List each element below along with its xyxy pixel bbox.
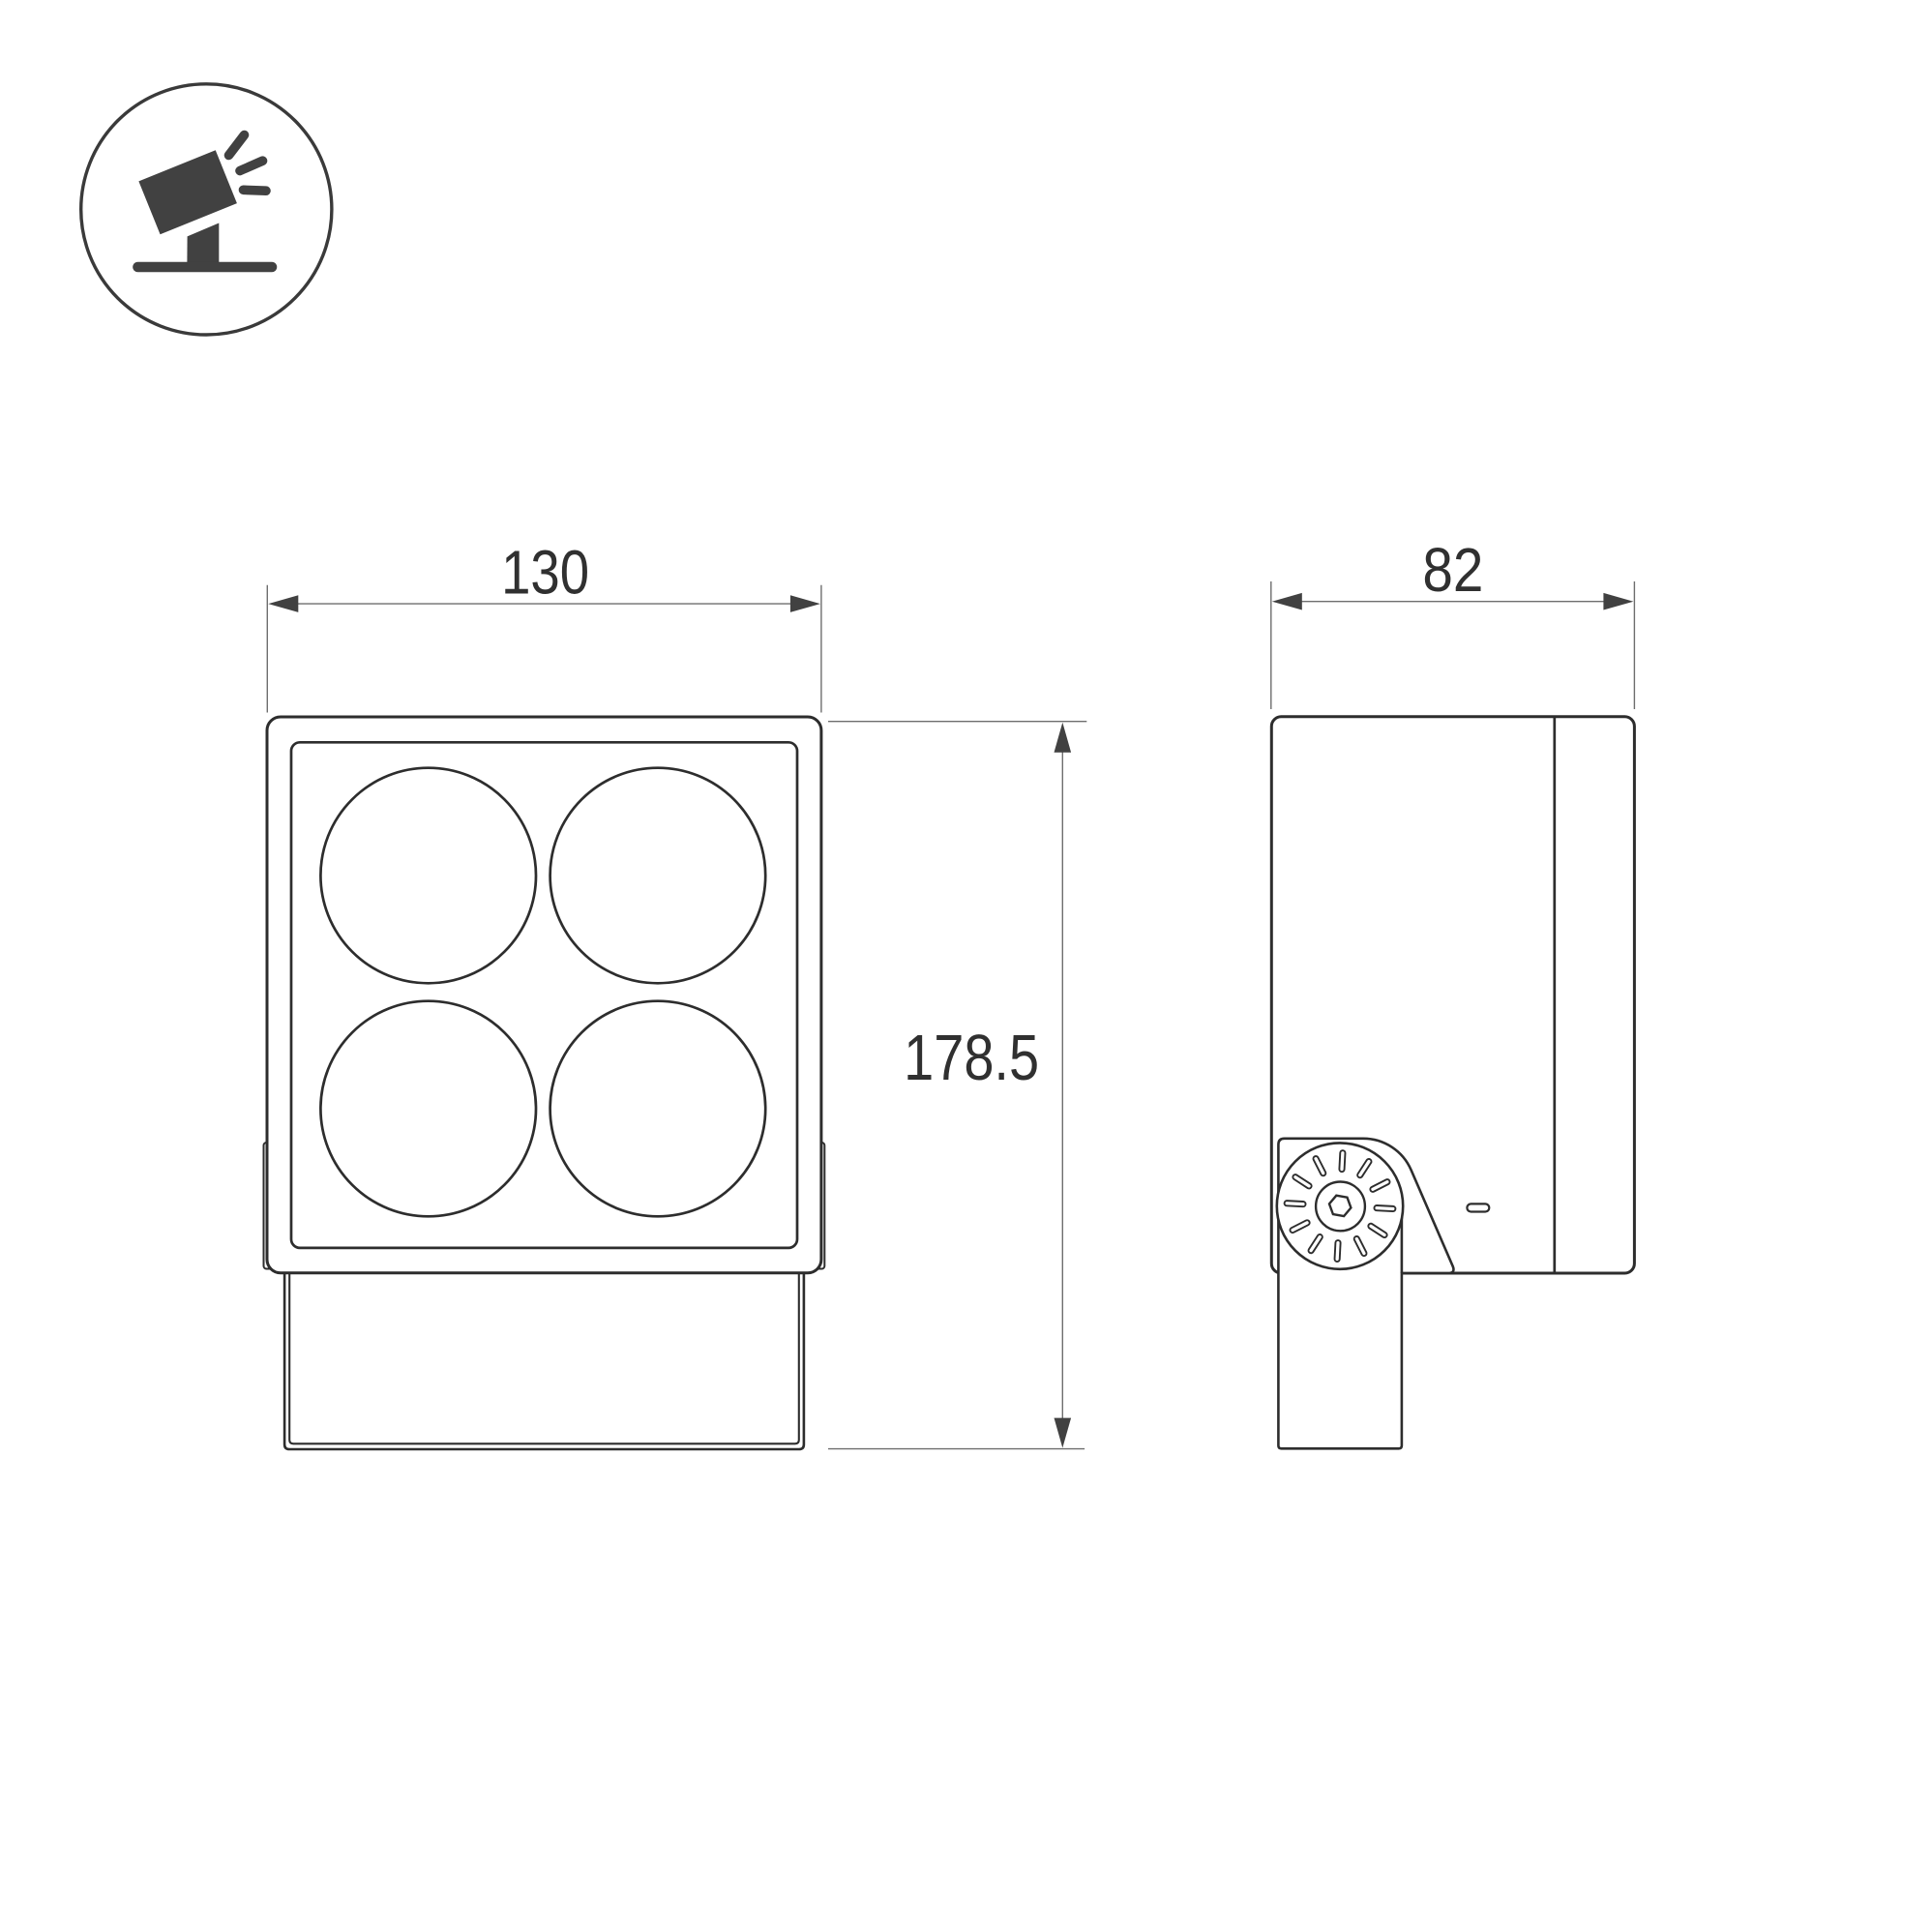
svg-text:178.5: 178.5 bbox=[904, 1022, 1039, 1094]
svg-text:130: 130 bbox=[501, 537, 589, 607]
svg-text:82: 82 bbox=[1422, 535, 1483, 605]
